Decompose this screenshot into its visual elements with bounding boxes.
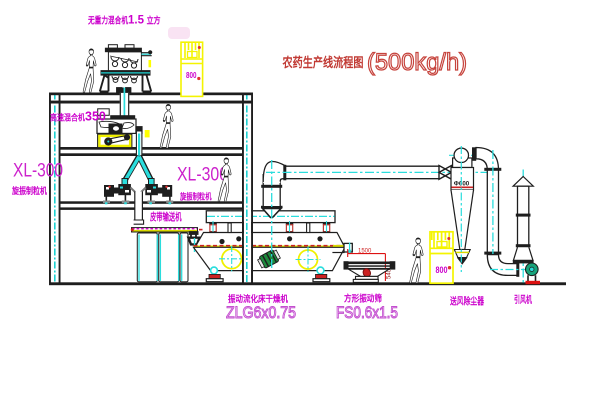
svg-text:方形振动筛: 方形振动筛 bbox=[344, 293, 382, 304]
svg-text:引风机: 引风机 bbox=[514, 294, 532, 306]
svg-text:XL-300: XL-300 bbox=[13, 161, 63, 182]
svg-text:800: 800 bbox=[186, 71, 197, 80]
svg-text:农药生产线流程图: 农药生产线流程图 bbox=[282, 54, 364, 70]
svg-text:无重力混合机1.5 立方: 无重力混合机1.5 立方 bbox=[87, 15, 160, 27]
svg-text:1500: 1500 bbox=[358, 249, 372, 255]
svg-text:XL-300: XL-300 bbox=[177, 165, 228, 186]
svg-text:800: 800 bbox=[436, 265, 448, 275]
svg-text:皮带输送机: 皮带输送机 bbox=[149, 211, 181, 224]
svg-text:旋振制粒机: 旋振制粒机 bbox=[179, 192, 212, 202]
svg-text:送风除尘器: 送风除尘器 bbox=[449, 296, 484, 308]
svg-text:FS0.6x1.5: FS0.6x1.5 bbox=[336, 303, 398, 322]
svg-text:旋振制粒机: 旋振制粒机 bbox=[11, 185, 47, 196]
svg-text:高速混合机350: 高速混合机350 bbox=[50, 110, 106, 124]
svg-text:ZLG6x0.75: ZLG6x0.75 bbox=[226, 303, 296, 322]
svg-text:(500kg/h): (500kg/h) bbox=[367, 49, 467, 76]
